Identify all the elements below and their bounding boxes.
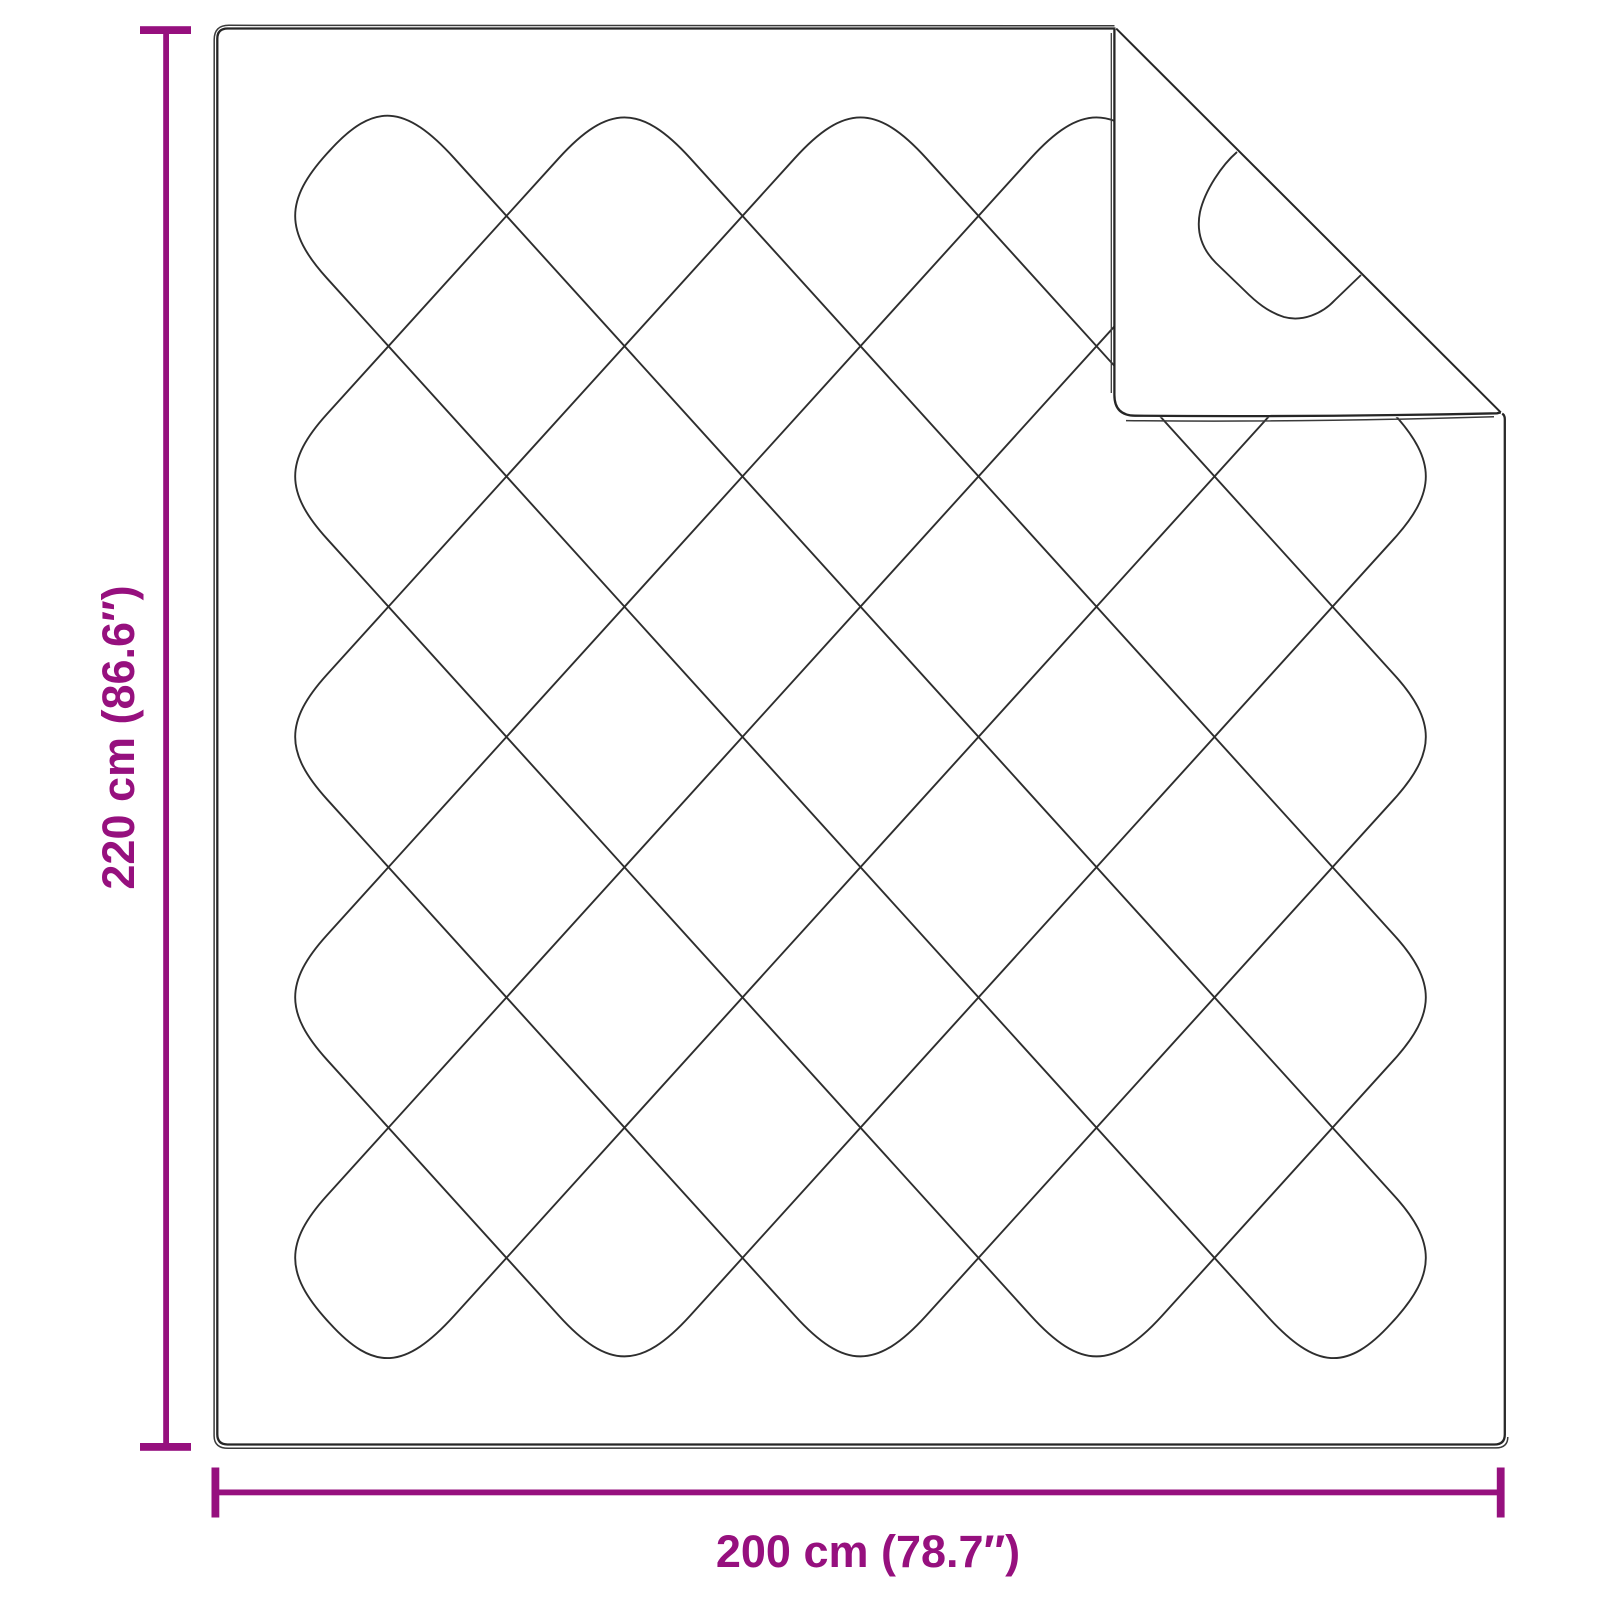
svg-text:200 cm (78.7″): 200 cm (78.7″) bbox=[716, 1526, 1020, 1577]
svg-text:220 cm (86.6″): 220 cm (86.6″) bbox=[93, 585, 144, 889]
